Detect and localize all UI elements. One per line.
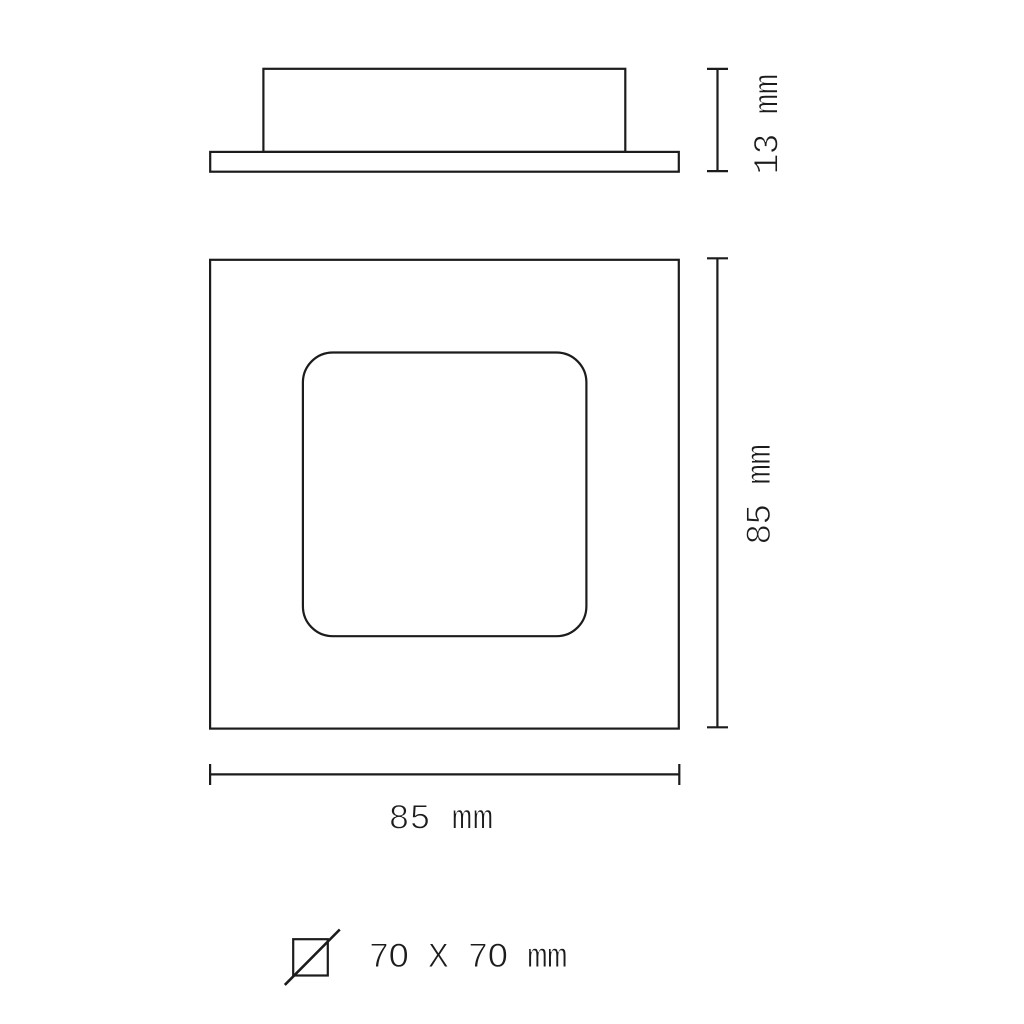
svg-text:13 mm: 13 mm <box>749 74 789 174</box>
svg-text:85 mm: 85 mm <box>388 799 493 839</box>
svg-text:85 mm: 85 mm <box>741 445 781 545</box>
svg-text:7O X 7O mm: 7O X 7O mm <box>369 938 567 978</box>
